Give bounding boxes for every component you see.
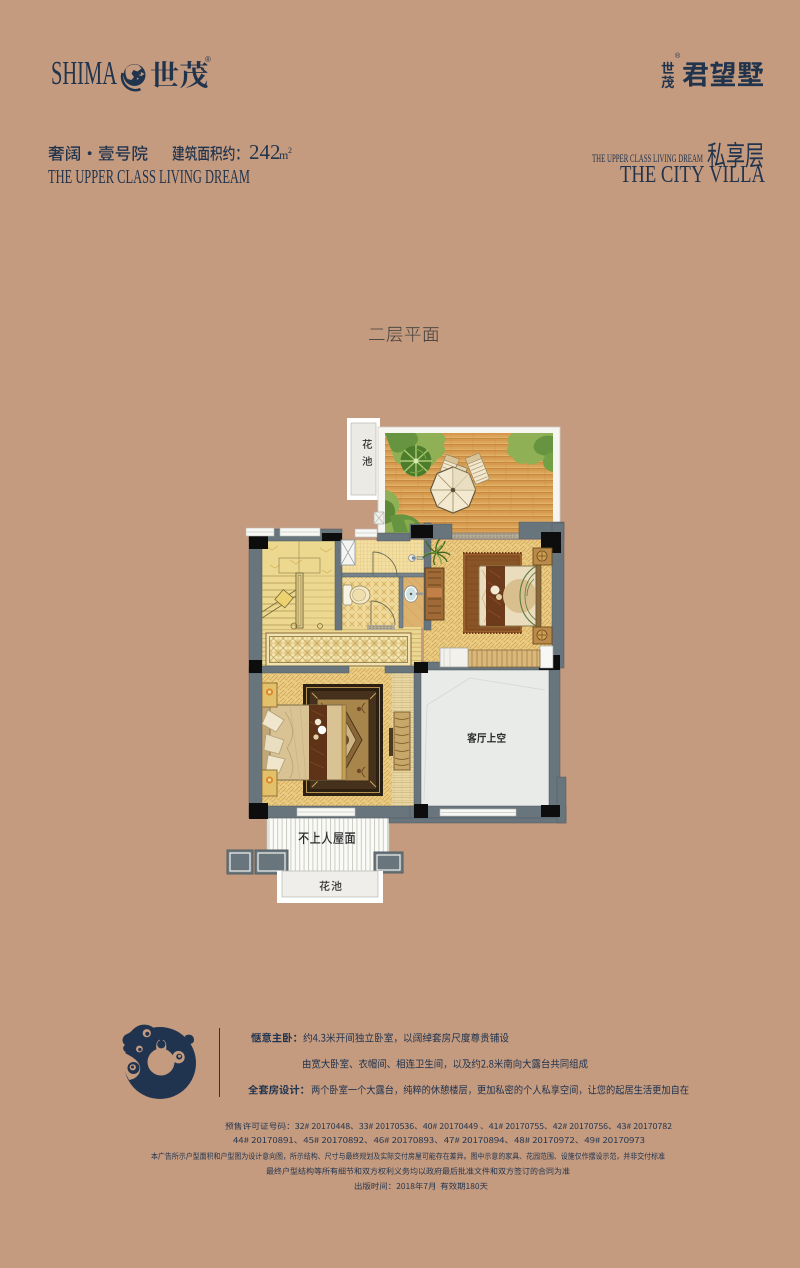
svg-text:242: 242 xyxy=(249,140,281,164)
svg-text:2: 2 xyxy=(288,146,292,155)
svg-text:SHIMA: SHIMA xyxy=(51,57,117,91)
svg-text:THE UPPER CLASS LIVING DREAM: THE UPPER CLASS LIVING DREAM xyxy=(48,168,250,188)
svg-text:THE CITY VILLA: THE CITY VILLA xyxy=(620,163,766,187)
